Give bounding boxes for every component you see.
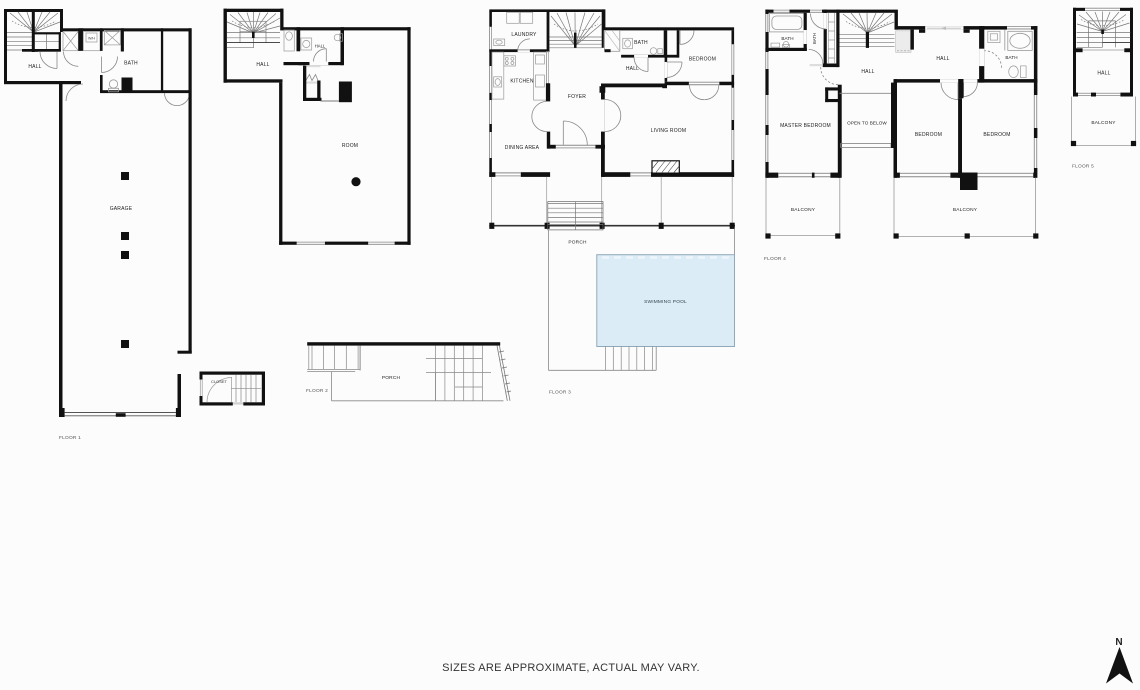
svg-text:ROOM: ROOM	[342, 143, 358, 149]
svg-text:HALL: HALL	[626, 66, 639, 72]
svg-text:BALCONY: BALCONY	[791, 207, 816, 213]
svg-text:HALL: HALL	[256, 62, 269, 68]
svg-text:SIZES ARE APPROXIMATE, ACTUAL: SIZES ARE APPROXIMATE, ACTUAL MAY VARY.	[442, 662, 700, 674]
svg-text:LAUNDRY: LAUNDRY	[511, 32, 537, 38]
svg-text:BATH: BATH	[812, 33, 817, 44]
svg-text:LIVING ROOM: LIVING ROOM	[651, 128, 687, 134]
svg-text:HALL: HALL	[1097, 71, 1110, 77]
svg-text:KITCHEN: KITCHEN	[510, 79, 534, 85]
svg-text:HALL: HALL	[861, 69, 874, 75]
svg-text:N: N	[1115, 637, 1122, 648]
svg-text:FLOOR 1: FLOOR 1	[59, 435, 81, 441]
svg-text:HALL: HALL	[28, 64, 41, 70]
svg-text:HALL: HALL	[936, 56, 949, 62]
svg-text:PORCH: PORCH	[568, 240, 587, 246]
svg-text:FLOOR 3: FLOOR 3	[549, 390, 571, 396]
svg-text:FOYER: FOYER	[568, 94, 586, 100]
svg-text:FLOOR 2: FLOOR 2	[306, 388, 328, 394]
svg-text:BEDROOM: BEDROOM	[983, 132, 1010, 138]
svg-text:OPEN TO BELOW: OPEN TO BELOW	[847, 121, 887, 126]
svg-text:MASTER BEDROOM: MASTER BEDROOM	[780, 123, 831, 129]
svg-text:PORCH: PORCH	[382, 375, 401, 381]
svg-text:FLOOR 5: FLOOR 5	[1072, 164, 1094, 170]
svg-text:BATH: BATH	[781, 36, 793, 41]
svg-text:BEDROOM: BEDROOM	[689, 57, 716, 63]
svg-text:BEDROOM: BEDROOM	[915, 132, 942, 138]
svg-text:BATH: BATH	[124, 61, 138, 67]
svg-text:HALL: HALL	[315, 44, 326, 49]
svg-text:W/H: W/H	[88, 37, 95, 41]
svg-text:BALCONY: BALCONY	[953, 207, 978, 213]
svg-text:BATH: BATH	[1005, 55, 1017, 60]
svg-text:GARAGE: GARAGE	[110, 206, 133, 212]
svg-text:SWIMMING POOL: SWIMMING POOL	[644, 299, 687, 305]
svg-text:FLOOR 4: FLOOR 4	[764, 256, 786, 262]
svg-text:CLOSET: CLOSET	[211, 379, 228, 384]
svg-text:DINING AREA: DINING AREA	[505, 145, 540, 151]
svg-text:BALCONY: BALCONY	[1091, 120, 1116, 126]
svg-text:BATH: BATH	[634, 40, 648, 46]
